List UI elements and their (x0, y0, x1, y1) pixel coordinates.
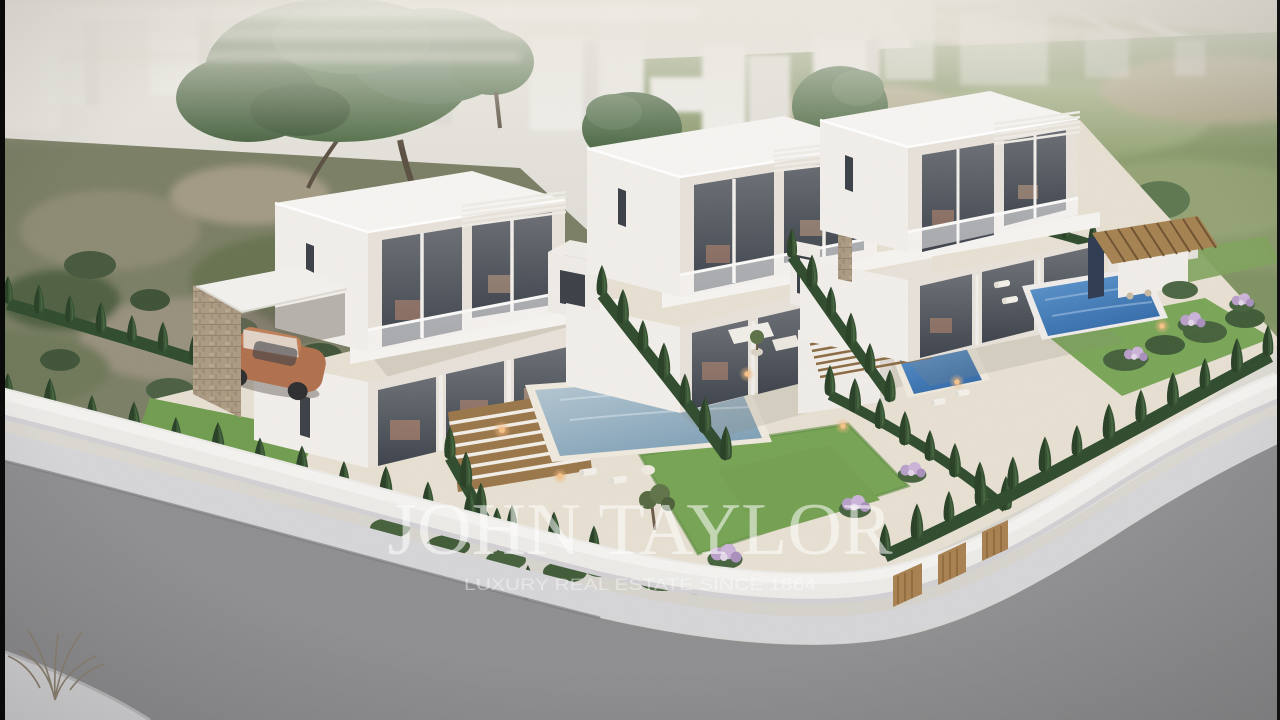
film-grain (0, 0, 1280, 720)
watermark-brand: JOHN TAYLOR (388, 489, 894, 571)
watermark-tagline: LUXURY REAL ESTATE SINCE 1864 (464, 575, 816, 594)
left-edge-bar (0, 0, 5, 720)
rendering-canvas: JOHN TAYLOR LUXURY REAL ESTATE SINCE 186… (0, 0, 1280, 720)
scene-svg: JOHN TAYLOR LUXURY REAL ESTATE SINCE 186… (0, 0, 1280, 720)
